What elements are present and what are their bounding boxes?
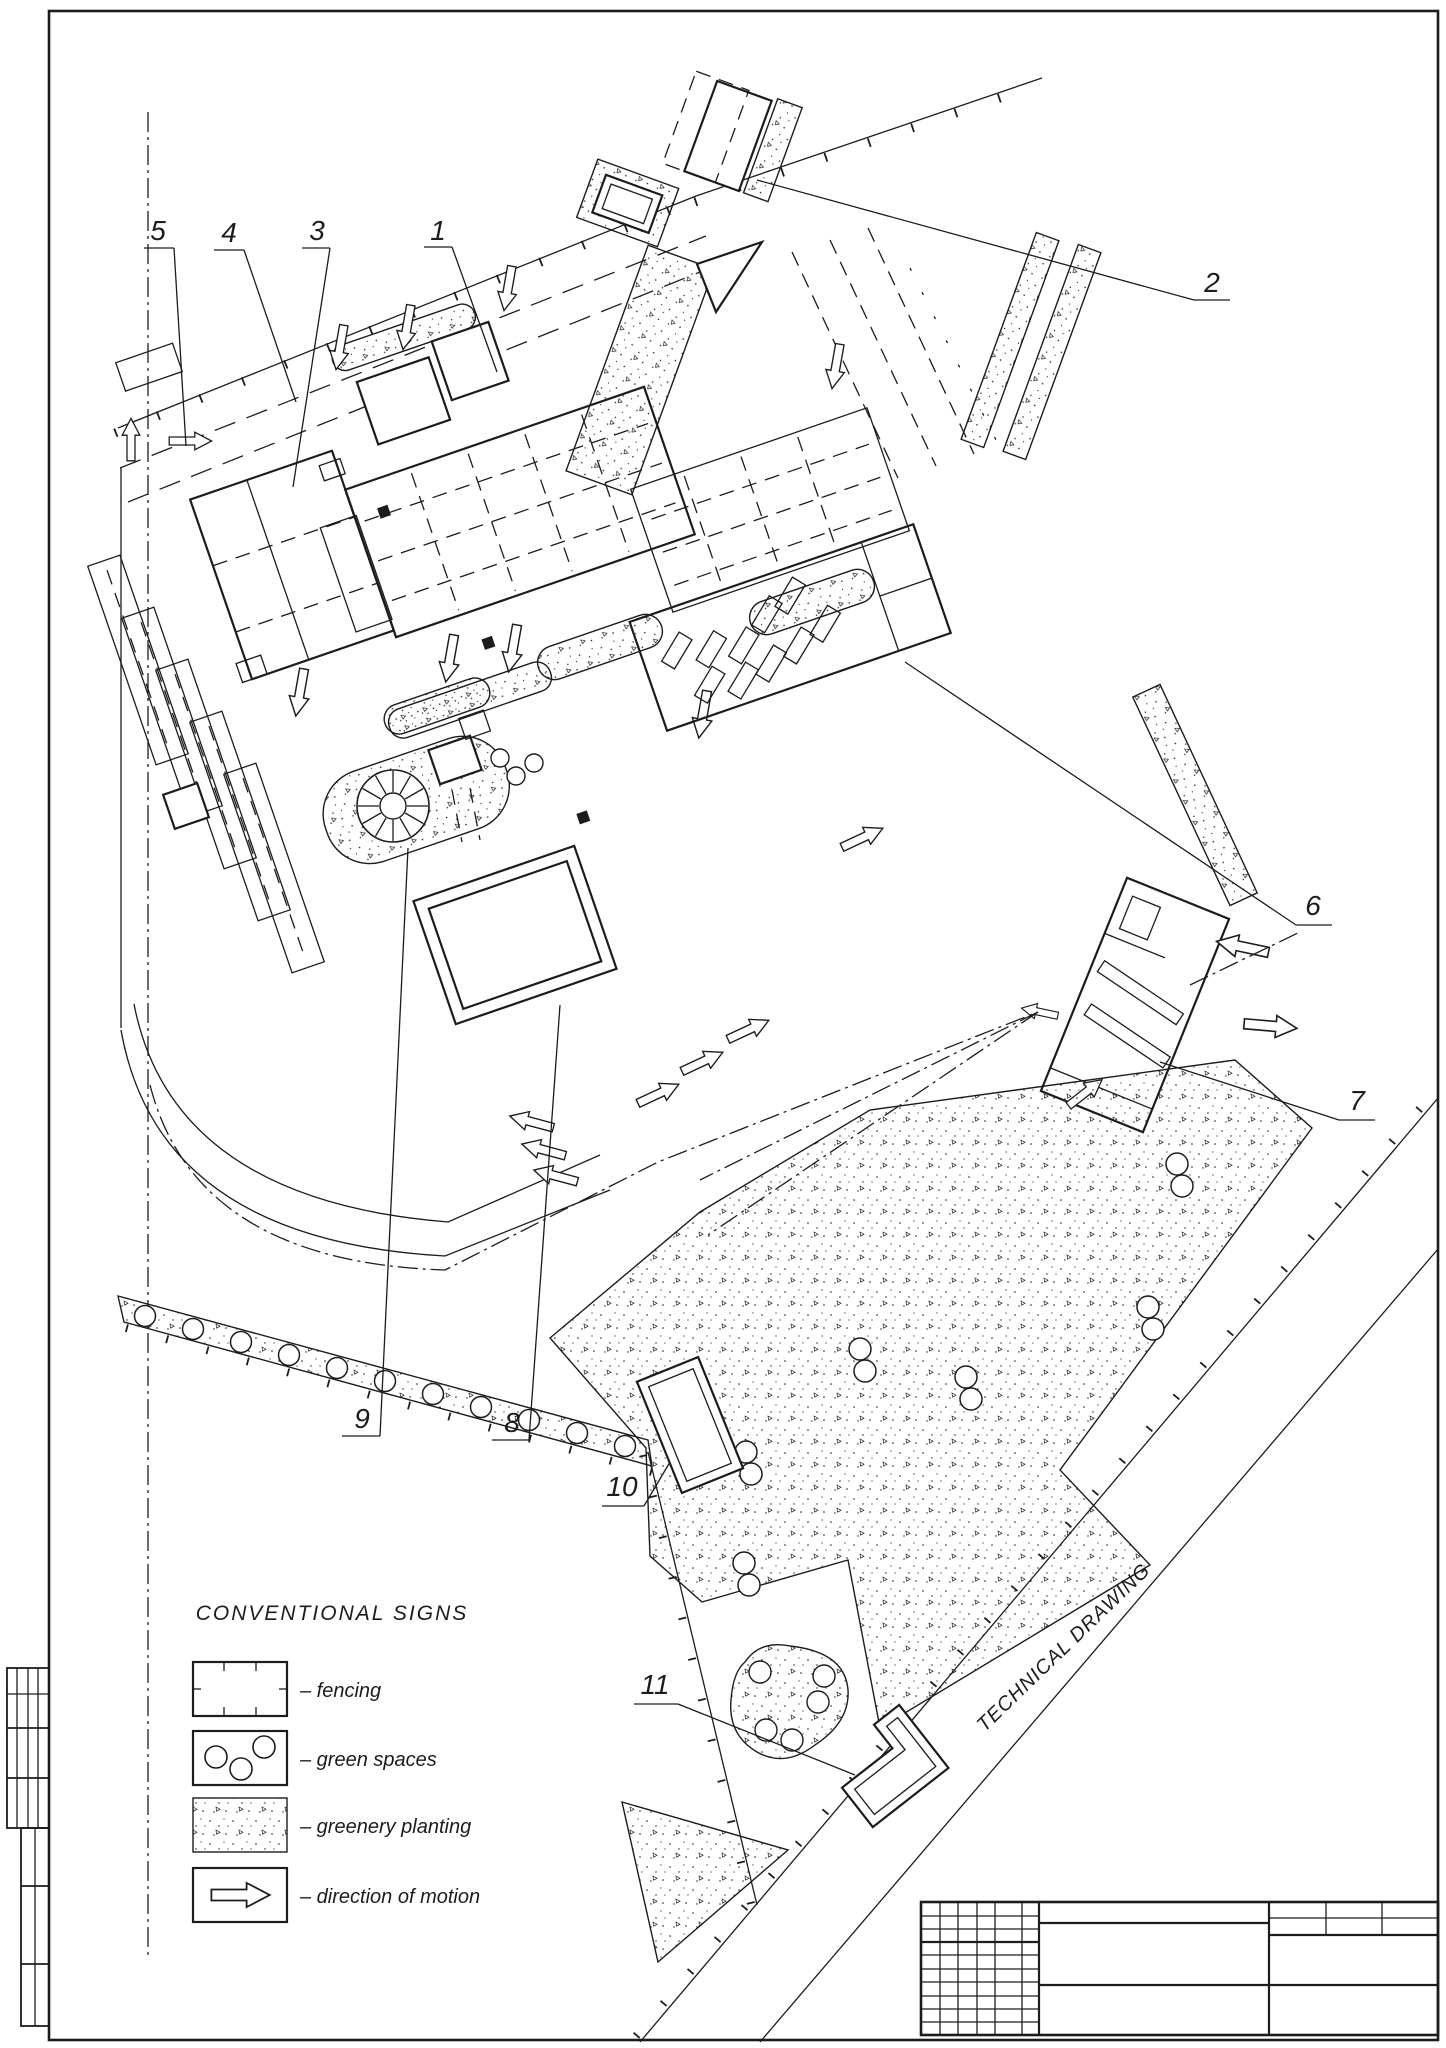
callout-5: 5	[144, 215, 186, 446]
green-triangle-south	[622, 1802, 788, 1962]
legend-label: – green spaces	[299, 1749, 437, 1771]
direction-arrow	[286, 667, 314, 717]
entrance-arrows	[122, 418, 211, 460]
legend-item-green-spaces: – green spaces	[193, 1731, 437, 1785]
tree-circle	[525, 754, 543, 772]
northeast-parking-cluster	[566, 159, 1101, 495]
left-stamp-lower	[21, 1828, 49, 2026]
direction-arrow	[531, 1161, 579, 1191]
legend-item-direction-of-motion: – direction of motion	[193, 1868, 480, 1922]
direction-arrow	[169, 432, 211, 450]
svg-text:11: 11	[640, 1669, 669, 1700]
greenery-planting-symbol-icon	[193, 1798, 287, 1852]
svg-text:1: 1	[430, 215, 446, 246]
title-block	[921, 1902, 1438, 2035]
legend-item-greenery-planting: – greenery planting	[193, 1798, 471, 1852]
svg-text:9: 9	[354, 1403, 370, 1434]
green-blob-island	[731, 1645, 848, 1759]
callout-9: 9	[342, 848, 408, 1436]
direction-arrow	[724, 1012, 773, 1048]
legend: CONVENTIONAL SIGNS – fencing – green spa…	[193, 1602, 480, 1922]
building-8	[413, 846, 616, 1024]
legend-label: – direction of motion	[299, 1886, 480, 1908]
svg-text:5: 5	[150, 215, 166, 246]
svg-text:10: 10	[606, 1471, 638, 1502]
direction-arrow	[507, 1107, 555, 1137]
svg-text:3: 3	[309, 215, 325, 246]
svg-text:8: 8	[504, 1407, 520, 1438]
tree-circle	[507, 767, 525, 785]
legend-title: CONVENTIONAL SIGNS	[196, 1602, 469, 1625]
svg-text:2: 2	[1203, 267, 1220, 298]
building-6	[630, 524, 951, 856]
site-plan-canvas: TECHNICAL DRAWING 1	[0, 0, 1446, 2048]
legend-item-fencing: – fencing	[193, 1662, 381, 1716]
callout-2: 2	[757, 180, 1230, 300]
drawing-sheet: TECHNICAL DRAWING 1	[0, 0, 1446, 2048]
direction-arrow	[838, 820, 887, 856]
building-2	[663, 69, 802, 201]
callout-6: 6	[905, 662, 1332, 925]
legend-label: – fencing	[299, 1680, 381, 1702]
direction-arrow	[436, 633, 464, 683]
direction-arrow	[634, 1076, 683, 1112]
legend-label: – greenery planting	[299, 1816, 471, 1838]
direction-arrow	[519, 1135, 567, 1165]
direction-arrow	[678, 1044, 727, 1080]
svg-text:7: 7	[1349, 1085, 1366, 1116]
greenery-strip-east	[1133, 684, 1257, 905]
left-stamp-upper	[7, 1668, 49, 1828]
direction-arrow	[495, 265, 521, 313]
direction-arrow	[1243, 1013, 1298, 1040]
tree-circle	[491, 749, 509, 767]
building-3	[181, 449, 399, 682]
boundary-fence-north	[115, 78, 1042, 433]
flower-bed-island	[311, 724, 522, 876]
svg-text:6: 6	[1305, 890, 1321, 921]
fencing-symbol-icon	[193, 1662, 287, 1716]
callout-4: 4	[214, 217, 296, 402]
building-11	[824, 1705, 949, 1827]
svg-text:4: 4	[221, 217, 237, 248]
callout-8: 8	[492, 1005, 560, 1440]
